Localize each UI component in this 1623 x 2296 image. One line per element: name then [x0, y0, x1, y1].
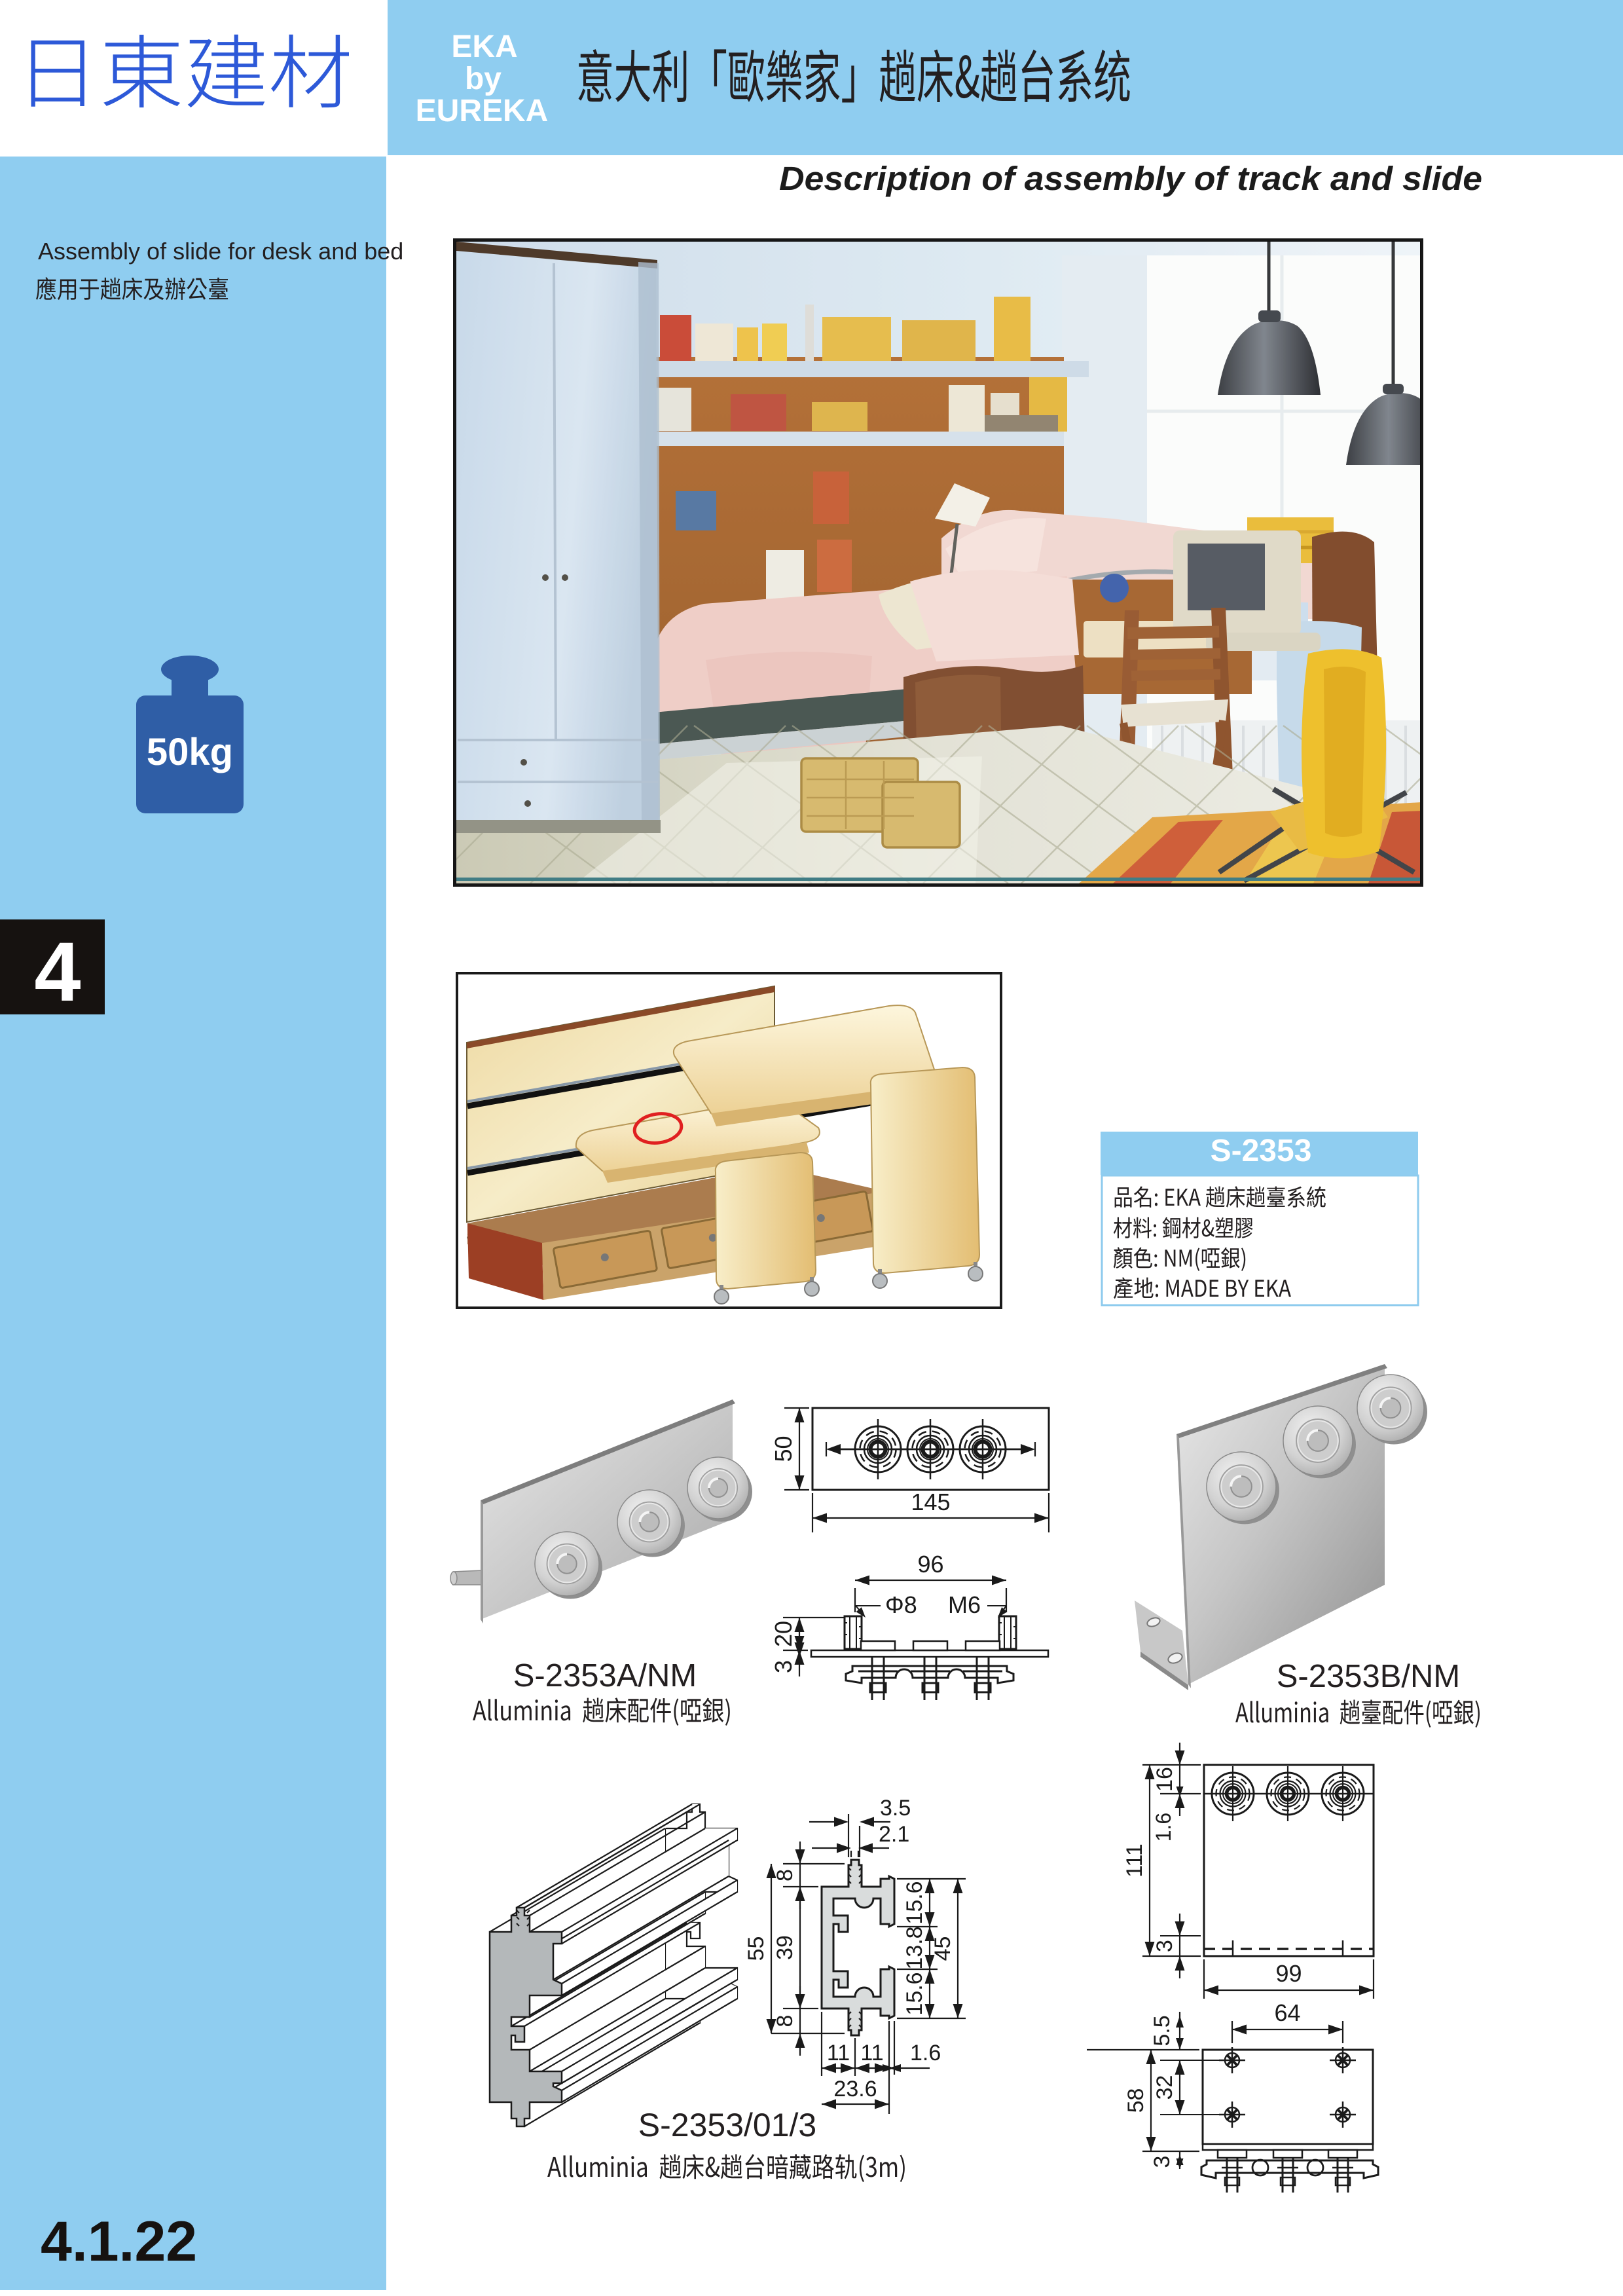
- svg-text:3: 3: [1152, 1940, 1177, 1952]
- svg-text:2.1: 2.1: [879, 1822, 909, 1847]
- svg-text:13.8: 13.8: [902, 1926, 927, 1969]
- svg-text:16: 16: [1152, 1767, 1177, 1792]
- svg-text:32: 32: [1152, 2075, 1177, 2100]
- svg-text:1.6: 1.6: [1152, 1813, 1175, 1842]
- svg-text:8: 8: [773, 1869, 797, 1881]
- svg-text:39: 39: [773, 1935, 797, 1960]
- svg-text:15.6: 15.6: [902, 1881, 927, 1924]
- svg-text:3: 3: [770, 1660, 797, 1673]
- svg-text:45: 45: [930, 1936, 955, 1961]
- svg-text:Φ8: Φ8: [885, 1591, 917, 1618]
- svg-text:23.6: 23.6: [833, 2077, 877, 2102]
- svg-text:11: 11: [860, 2041, 883, 2065]
- svg-text:50kg: 50kg: [147, 731, 233, 773]
- svg-text:3: 3: [1150, 2156, 1175, 2168]
- svg-text:20: 20: [770, 1621, 797, 1647]
- svg-text:EKA: EKA: [451, 29, 517, 64]
- svg-text:1.6: 1.6: [910, 2041, 941, 2065]
- svg-text:4.1.22: 4.1.22: [41, 2210, 197, 2273]
- svg-text:4: 4: [34, 925, 81, 1019]
- svg-text:Description of assembly of tra: Description of assembly of track and sli…: [779, 160, 1482, 197]
- svg-text:S-2353B/NM: S-2353B/NM: [1277, 1659, 1461, 1694]
- svg-text:M6: M6: [948, 1591, 981, 1618]
- svg-text:96: 96: [917, 1551, 943, 1578]
- svg-text:99: 99: [1275, 1960, 1302, 1987]
- svg-text:111: 111: [1122, 1843, 1147, 1878]
- svg-text:Assembly of slide for desk and: Assembly of slide for desk and bed: [38, 238, 403, 265]
- svg-text:EUREKA: EUREKA: [416, 94, 549, 128]
- svg-text:55: 55: [744, 1936, 769, 1961]
- svg-text:3.5: 3.5: [880, 1796, 911, 1821]
- svg-text:8: 8: [773, 2015, 797, 2028]
- svg-text:64: 64: [1274, 1999, 1300, 2026]
- svg-text:58: 58: [1123, 2088, 1148, 2113]
- svg-text:5.5: 5.5: [1150, 2015, 1175, 2046]
- svg-text:S-2353/01/3: S-2353/01/3: [638, 2107, 816, 2143]
- svg-text:15.6: 15.6: [902, 1972, 927, 2015]
- svg-text:S-2353A/NM: S-2353A/NM: [513, 1658, 697, 1694]
- svg-text:145: 145: [911, 1489, 950, 1515]
- svg-text:50: 50: [770, 1435, 797, 1462]
- svg-text:by: by: [465, 62, 501, 96]
- svg-text:11: 11: [827, 2041, 850, 2065]
- svg-text:S-2353: S-2353: [1211, 1134, 1312, 1168]
